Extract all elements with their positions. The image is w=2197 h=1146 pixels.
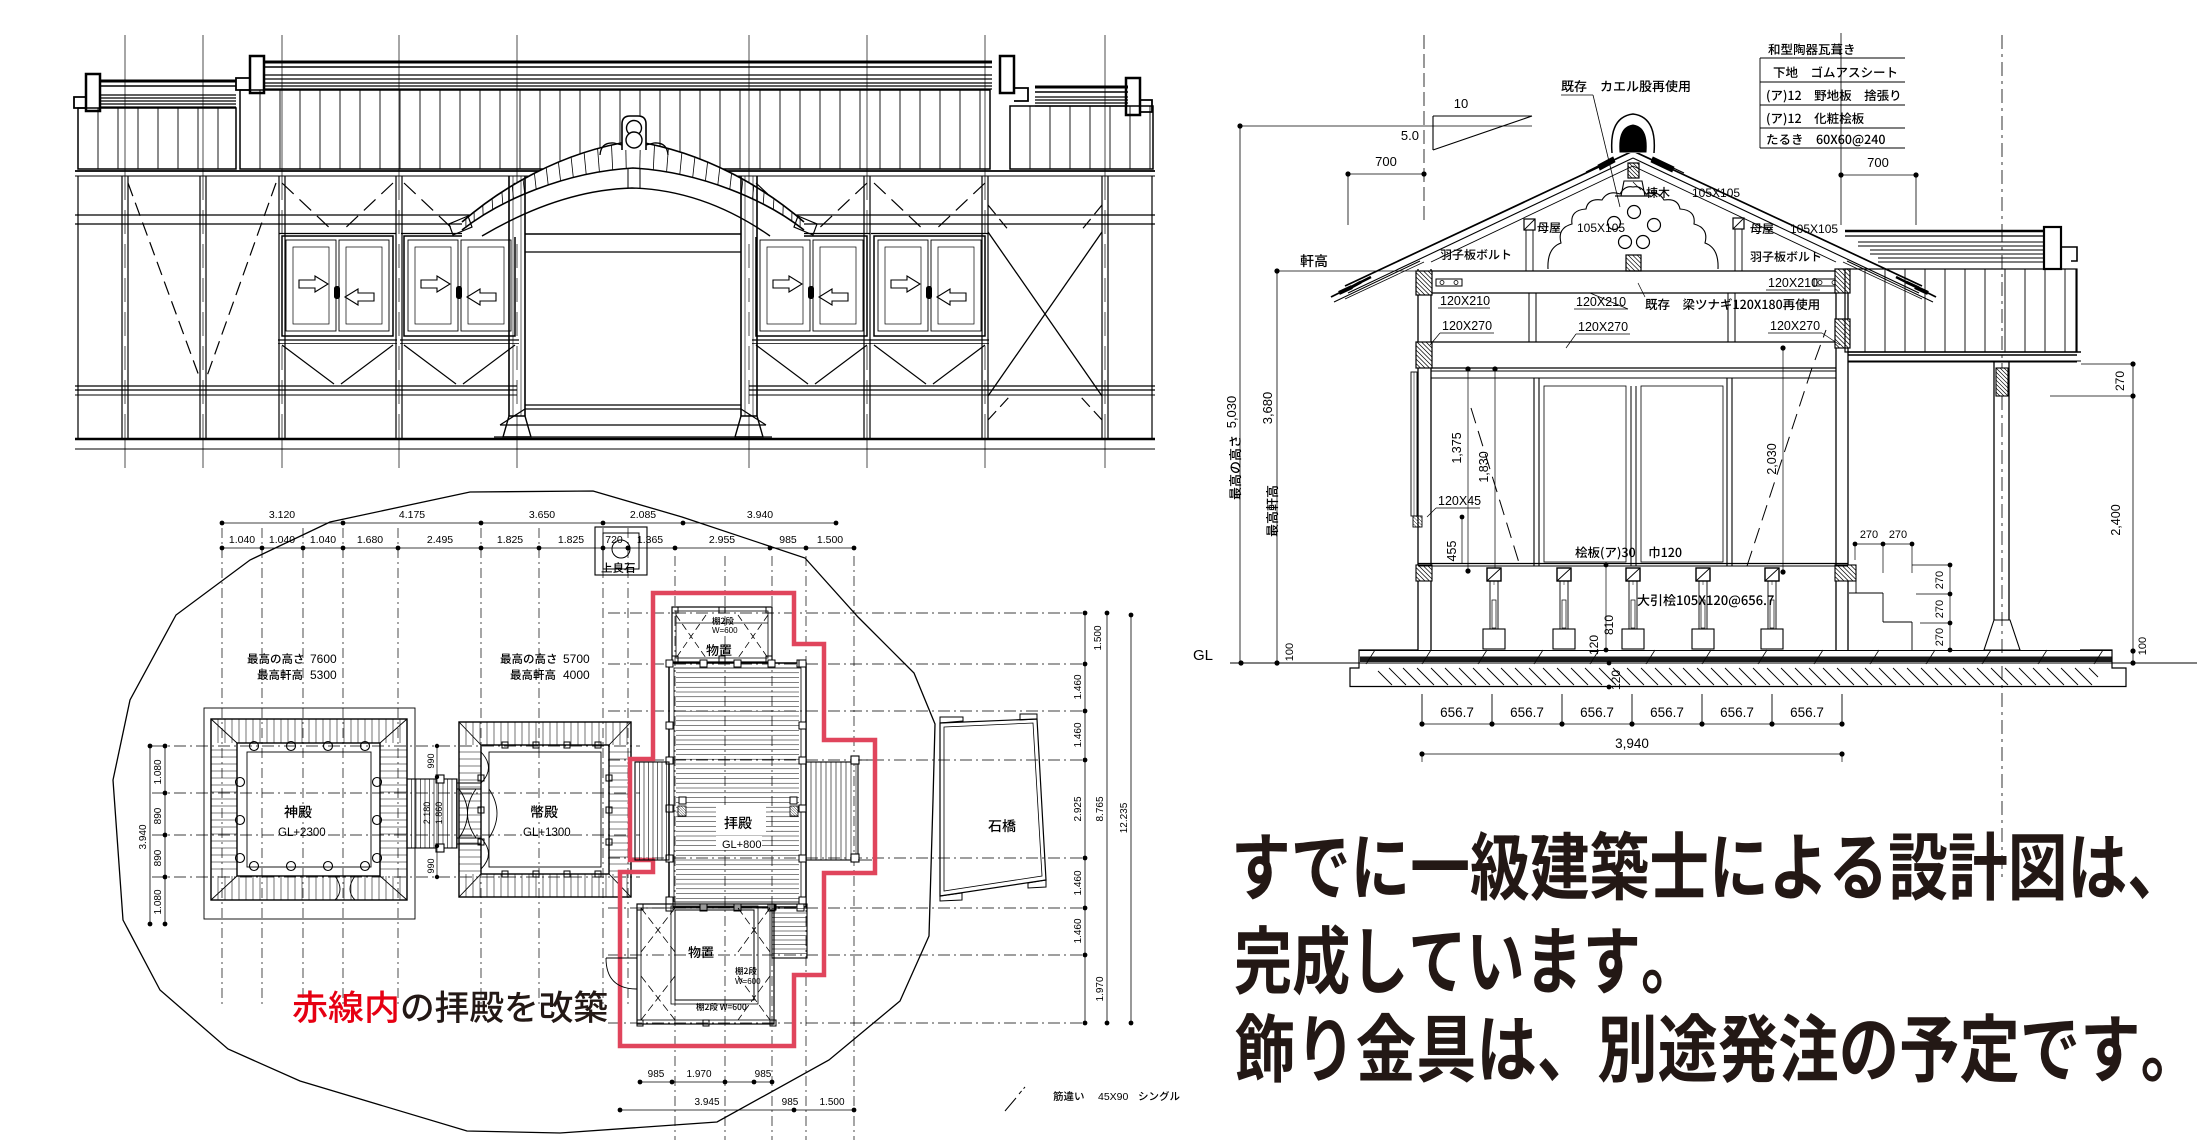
svg-text:120X270: 120X270 <box>1578 320 1628 334</box>
svg-text:100: 100 <box>2137 637 2149 655</box>
svg-text:1.040: 1.040 <box>229 534 255 546</box>
svg-text:GL+800: GL+800 <box>722 839 761 851</box>
svg-text:3,940: 3,940 <box>1615 736 1649 751</box>
svg-text:270: 270 <box>1889 529 1907 541</box>
svg-text:656.7: 656.7 <box>1580 705 1614 720</box>
svg-text:810: 810 <box>1602 615 1616 635</box>
svg-text:GL: GL <box>1193 647 1213 664</box>
svg-text:W=600: W=600 <box>712 626 738 635</box>
svg-text:3,680: 3,680 <box>1260 392 1275 425</box>
svg-text:120X210: 120X210 <box>1440 294 1490 308</box>
svg-text:985: 985 <box>648 1069 665 1080</box>
svg-text:2.495: 2.495 <box>427 534 453 546</box>
svg-text:1.040: 1.040 <box>269 534 295 546</box>
svg-text:5.0: 5.0 <box>1401 128 1419 143</box>
svg-text:5,030: 5,030 <box>1224 396 1239 429</box>
svg-text:3.120: 3.120 <box>269 509 295 521</box>
svg-text:1.040: 1.040 <box>310 534 336 546</box>
svg-text:120X45: 120X45 <box>1438 494 1481 508</box>
svg-text:120X210: 120X210 <box>1768 276 1818 290</box>
svg-text:1.825: 1.825 <box>558 534 584 546</box>
svg-text:1.970: 1.970 <box>1095 976 1106 1001</box>
svg-text:120: 120 <box>1587 635 1601 655</box>
svg-text:2.955: 2.955 <box>709 534 735 546</box>
svg-text:1.500: 1.500 <box>819 1097 844 1108</box>
svg-text:120X270: 120X270 <box>1770 319 1820 333</box>
svg-text:2,400: 2,400 <box>2109 504 2123 535</box>
svg-text:985: 985 <box>779 534 797 546</box>
svg-text:270: 270 <box>1860 529 1878 541</box>
svg-text:2.925: 2.925 <box>1073 796 1084 821</box>
svg-text:1.460: 1.460 <box>1073 918 1084 943</box>
svg-text:5300: 5300 <box>310 668 337 682</box>
svg-text:656.7: 656.7 <box>1440 705 1474 720</box>
svg-text:270: 270 <box>1934 628 1946 646</box>
svg-text:1.680: 1.680 <box>357 534 383 546</box>
svg-text:1.860: 1.860 <box>434 802 444 825</box>
svg-text:985: 985 <box>782 1097 799 1108</box>
svg-text:270: 270 <box>1934 600 1946 618</box>
svg-text:3.940: 3.940 <box>747 509 773 521</box>
svg-text:8.765: 8.765 <box>1095 796 1106 821</box>
svg-text:105X105: 105X105 <box>1577 221 1625 235</box>
svg-text:GL+2300: GL+2300 <box>278 827 326 839</box>
svg-text:1.970: 1.970 <box>686 1069 711 1080</box>
svg-text:3.940: 3.940 <box>138 824 149 849</box>
svg-text:7600: 7600 <box>310 652 337 666</box>
svg-text:2.085: 2.085 <box>630 509 656 521</box>
svg-text:3.650: 3.650 <box>529 509 555 521</box>
svg-text:120X210: 120X210 <box>1576 295 1626 309</box>
svg-text:3.945: 3.945 <box>694 1097 719 1108</box>
svg-text:990: 990 <box>426 753 436 768</box>
svg-text:1.460: 1.460 <box>1073 722 1084 747</box>
svg-text:1,375: 1,375 <box>1450 432 1464 463</box>
svg-text:45X90: 45X90 <box>1098 1091 1129 1103</box>
svg-text:700: 700 <box>1867 155 1889 170</box>
svg-text:100: 100 <box>1284 643 1296 661</box>
svg-text:2.180: 2.180 <box>422 802 432 825</box>
svg-text:1.500: 1.500 <box>1093 625 1104 650</box>
svg-text:1.500: 1.500 <box>817 534 843 546</box>
svg-text:12.235: 12.235 <box>1119 802 1130 833</box>
svg-text:GL+1300: GL+1300 <box>523 827 571 839</box>
svg-text:1.460: 1.460 <box>1073 674 1084 699</box>
svg-text:105X105: 105X105 <box>1692 186 1740 200</box>
svg-text:1.080: 1.080 <box>153 759 164 784</box>
svg-text:700: 700 <box>1375 154 1397 169</box>
svg-text:5700: 5700 <box>563 652 590 666</box>
svg-text:2,030: 2,030 <box>1765 443 1779 474</box>
svg-text:W=600: W=600 <box>735 977 761 986</box>
svg-text:985: 985 <box>755 1069 772 1080</box>
svg-text:120X270: 120X270 <box>1442 319 1492 333</box>
svg-text:4000: 4000 <box>563 668 590 682</box>
svg-text:455: 455 <box>1445 541 1459 562</box>
svg-text:4.175: 4.175 <box>399 509 425 521</box>
svg-text:890: 890 <box>153 849 164 866</box>
svg-text:1.825: 1.825 <box>497 534 523 546</box>
svg-text:10: 10 <box>1454 96 1468 111</box>
svg-text:656.7: 656.7 <box>1650 705 1684 720</box>
svg-text:270: 270 <box>2113 371 2127 391</box>
svg-text:890: 890 <box>153 807 164 824</box>
svg-text:656.7: 656.7 <box>1510 705 1544 720</box>
svg-text:1.080: 1.080 <box>153 889 164 914</box>
svg-text:990: 990 <box>426 858 436 873</box>
svg-text:105X105: 105X105 <box>1790 222 1838 236</box>
svg-text:1.365: 1.365 <box>637 534 663 546</box>
svg-text:656.7: 656.7 <box>1790 705 1824 720</box>
svg-text:270: 270 <box>1934 571 1946 589</box>
svg-text:1.460: 1.460 <box>1073 870 1084 895</box>
svg-text:656.7: 656.7 <box>1720 705 1754 720</box>
